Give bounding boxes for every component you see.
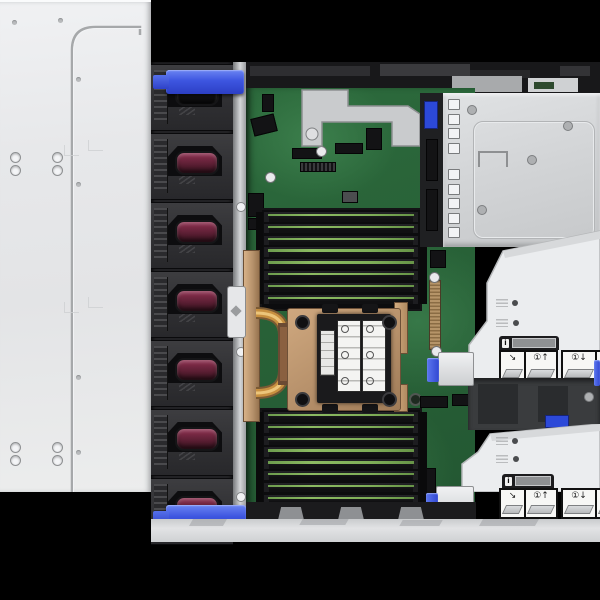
fan-release-handle[interactable] (175, 151, 219, 175)
riser-bay-gap (420, 93, 443, 247)
screw-post (429, 272, 440, 283)
dimm-module[interactable] (264, 436, 418, 446)
vent-slot (448, 184, 460, 195)
vent-slot (448, 227, 460, 238)
vent-slot (448, 114, 460, 125)
stamped-mark (64, 145, 79, 156)
heatsink-tab (362, 404, 378, 413)
chassis-bottom-edge (151, 519, 600, 542)
heatsink-screw[interactable] (295, 315, 310, 330)
label-tray-drawing (502, 369, 523, 378)
tray-screw (477, 205, 487, 215)
dimm-module[interactable] (264, 283, 418, 293)
server-interior-photo: i ↘①↑①↓↩ i ↘①↑①↓↩ (0, 0, 600, 600)
heatsink-tab (362, 304, 378, 313)
rivet (12, 20, 17, 25)
baffle-hole (513, 456, 519, 462)
dimm-module[interactable] (264, 471, 418, 481)
dimm-module[interactable] (264, 224, 418, 234)
component (342, 191, 358, 203)
rail-screw (236, 202, 246, 212)
vent-slot (448, 128, 460, 139)
baffle-hole (513, 320, 519, 326)
dimm-bank (262, 410, 420, 509)
fan-grip (154, 139, 168, 193)
shadow-slat (399, 520, 442, 526)
rivet (76, 375, 81, 380)
tray-screw (467, 105, 477, 115)
info-icon: i (502, 339, 509, 348)
cover-screw-holes (10, 152, 62, 174)
vent-mark (496, 437, 508, 445)
heatsink-tab (322, 304, 338, 313)
rail-screw (236, 492, 246, 502)
cpu-service-label (337, 320, 361, 392)
label-tray-drawing (527, 369, 555, 378)
dimm-module[interactable] (264, 236, 418, 246)
bay-screw (584, 392, 594, 402)
fan-grip (154, 208, 168, 262)
blue-touchpoint-clip[interactable] (427, 358, 439, 382)
fan-module (151, 409, 233, 476)
fan-release-handle[interactable] (175, 289, 219, 313)
fan-module (151, 271, 233, 338)
label-tray-drawing (527, 505, 555, 514)
vent-mark (496, 319, 508, 327)
service-label-insert-icon: ①↓ (563, 490, 595, 517)
label-tray-drawing (502, 505, 523, 514)
vent-slot (448, 213, 460, 224)
vent-mark (496, 299, 508, 307)
dimm-latch-column (420, 412, 427, 504)
service-label-lift-icon: ①↑ (526, 352, 556, 381)
screw-hole (52, 152, 63, 163)
dimm-module[interactable] (264, 483, 418, 493)
rail-segment (250, 66, 370, 76)
screw-hole (52, 442, 63, 453)
screw-hole (52, 165, 63, 176)
fan-grip (154, 346, 168, 400)
heatsink-screw[interactable] (382, 315, 397, 330)
label-tray-drawing (564, 369, 594, 378)
baffle-hole (512, 300, 518, 306)
cover-screw-holes (10, 442, 62, 464)
connector (262, 94, 274, 112)
fan-cage-release-handle-top[interactable] (166, 70, 244, 94)
dimm-module[interactable] (264, 447, 418, 457)
shadow-slat (479, 519, 539, 526)
rail-segment (380, 64, 470, 76)
vent-slot (448, 169, 460, 180)
service-label-header: i (502, 474, 554, 488)
power-supply-tray (443, 93, 600, 247)
connector (420, 396, 448, 408)
rivet (58, 18, 63, 23)
dimm-module[interactable] (264, 247, 418, 257)
label-text-box (512, 338, 556, 348)
shadow-slat (189, 519, 227, 526)
dimm-module[interactable] (264, 212, 418, 222)
vent-slot (448, 198, 460, 209)
shadow-slat (299, 519, 348, 525)
screw-post (265, 172, 276, 183)
rail-connector-green (534, 82, 554, 89)
fan-release-handle[interactable] (175, 358, 219, 382)
cable-bracket (438, 352, 474, 386)
fan-release-handle[interactable] (175, 220, 219, 244)
fan-cage-release-tab-top[interactable] (153, 75, 169, 89)
dimm-module[interactable] (264, 259, 418, 269)
bay-slot (478, 384, 518, 424)
screw-hole (52, 455, 63, 466)
tray-handle-cutout[interactable] (478, 151, 508, 167)
screw-hole (10, 455, 21, 466)
fan-grip (154, 415, 168, 469)
vent-slot (448, 143, 460, 154)
label-tray-drawing (564, 505, 594, 514)
tray-screw (563, 121, 573, 131)
cover-crease-line (0, 2, 151, 492)
cpu-service-label (362, 320, 386, 392)
vent-slot (448, 99, 460, 110)
dimm-module[interactable] (264, 424, 418, 434)
heatsink-screw[interactable] (382, 392, 397, 407)
screw-hole (10, 165, 21, 176)
vent-mark (496, 455, 508, 463)
fan-release-handle[interactable] (175, 427, 219, 451)
slot (426, 139, 438, 181)
heatsink-screw[interactable] (295, 392, 310, 407)
cpu-warning-label (320, 330, 335, 376)
service-label-header: i (499, 336, 559, 350)
stamped-mark (88, 297, 103, 308)
vent-group (448, 169, 460, 238)
baffle-hole (512, 438, 518, 444)
hot-plug-fan-cage (151, 62, 233, 534)
pin-header (300, 162, 336, 172)
service-label-lift-icon: ①↑ (526, 490, 556, 517)
vent-group (448, 99, 460, 154)
fan-modules (151, 64, 233, 547)
screw-hole (10, 442, 21, 453)
fan-module (151, 340, 233, 407)
screw-hole (10, 152, 21, 163)
white-bracket (227, 286, 246, 338)
service-label-unhook-icon: ↘ (501, 352, 524, 381)
blue-latch[interactable] (424, 101, 438, 129)
service-label-insert-icon: ①↓ (563, 352, 595, 381)
rivet (76, 450, 81, 455)
stamped-mark (88, 140, 103, 151)
connector (430, 250, 446, 268)
stamped-mark (64, 302, 79, 313)
label-text-box (515, 476, 551, 486)
riser-connector (429, 280, 441, 350)
riser-bay-lower (468, 378, 600, 430)
service-label-group: ①↓↩ (561, 488, 600, 519)
tray-screw (527, 155, 537, 165)
service-label-group: ↘①↑ (499, 488, 558, 519)
dimm-latch-column (256, 412, 263, 504)
rail-segment (560, 66, 590, 76)
top-cover-panel[interactable] (0, 0, 151, 492)
fan-grip (154, 277, 168, 331)
dimm-module[interactable] (264, 271, 418, 281)
heatsink-tab (322, 404, 338, 413)
fan-module (151, 202, 233, 269)
slot (426, 189, 438, 231)
service-label-unhook-icon: ↘ (501, 490, 524, 517)
fan-module (151, 133, 233, 200)
rivet (76, 77, 81, 82)
blue-touchpoint-clip[interactable] (594, 360, 600, 386)
dimm-module[interactable] (264, 459, 418, 469)
chip (250, 113, 278, 136)
tray-emboss-line (473, 121, 595, 239)
service-label-row: ↘①↑①↓↩ (499, 488, 600, 519)
info-icon: i (505, 477, 512, 486)
rivet (76, 182, 81, 187)
